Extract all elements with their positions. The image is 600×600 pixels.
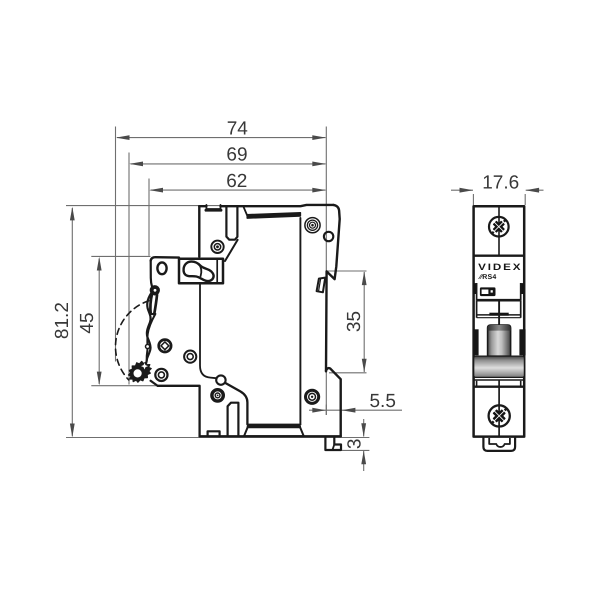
svg-text:17.6: 17.6 — [482, 172, 519, 193]
svg-text:VIDEX: VIDEX — [478, 262, 522, 272]
svg-text:⁄⁄RS4: ⁄⁄RS4 — [478, 274, 497, 281]
svg-text:35: 35 — [344, 311, 365, 332]
svg-text:5.5: 5.5 — [369, 391, 395, 412]
svg-text:81.2: 81.2 — [52, 302, 73, 339]
svg-text:45: 45 — [77, 312, 98, 333]
svg-text:74: 74 — [227, 118, 249, 139]
svg-text:3: 3 — [344, 439, 365, 450]
svg-text:69: 69 — [226, 145, 247, 166]
svg-text:62: 62 — [226, 171, 247, 192]
